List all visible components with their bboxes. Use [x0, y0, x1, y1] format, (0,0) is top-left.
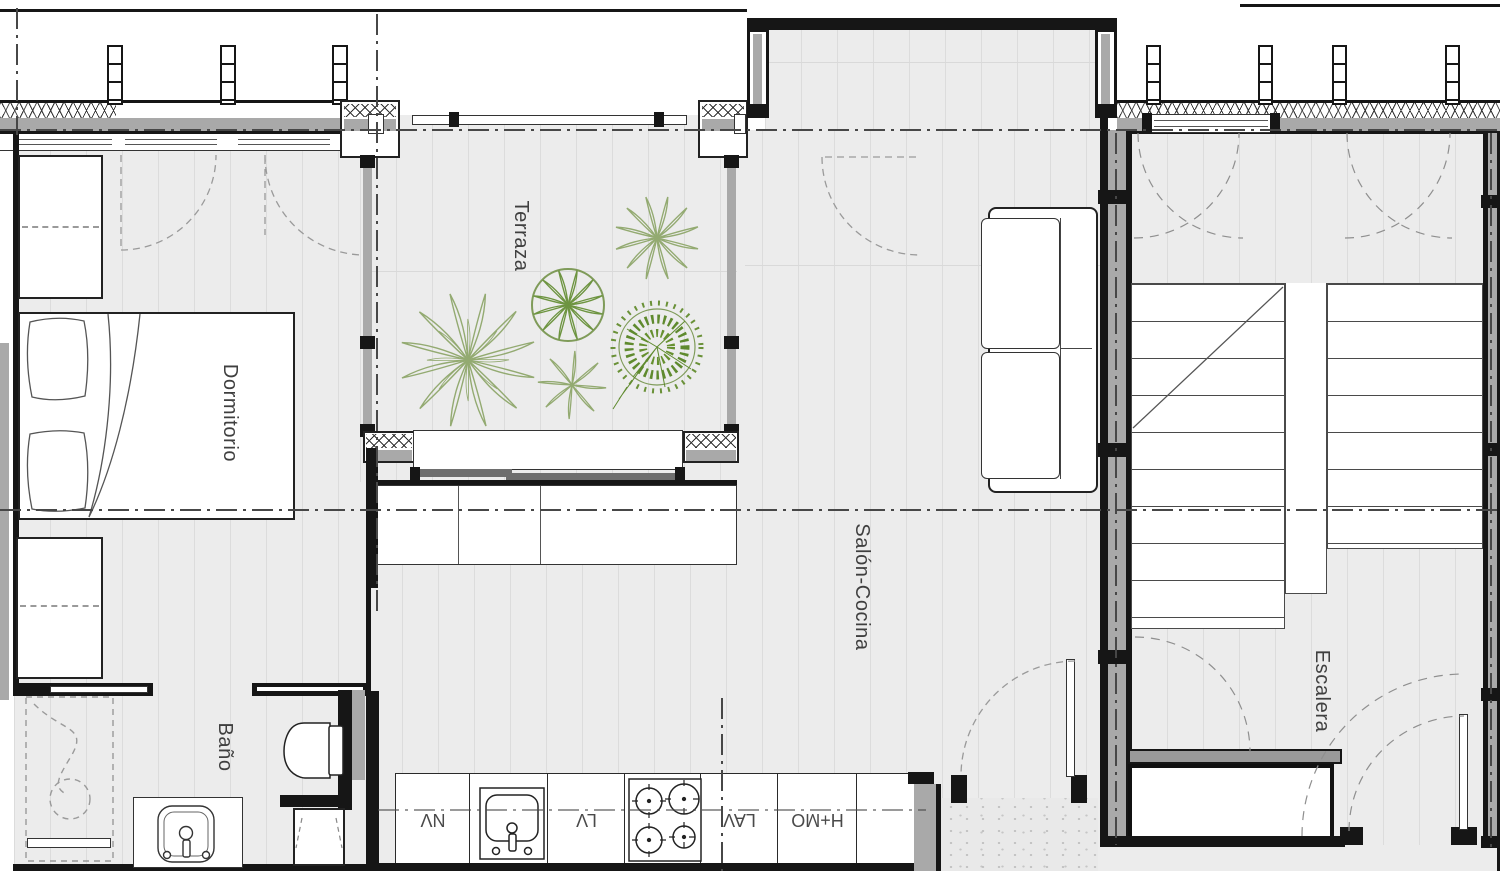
plant-lily	[530, 343, 615, 428]
appliance-label-lav: LAV	[701, 806, 778, 834]
washbasin	[158, 806, 214, 862]
plant-agave-small	[616, 197, 698, 279]
sink-glyph	[480, 788, 544, 859]
stair-door-arcs	[1134, 133, 1464, 836]
stair-direction-line	[1133, 287, 1283, 428]
bed-detail	[27, 314, 140, 517]
reference-line-horizontal	[0, 129, 1500, 131]
toilet	[284, 723, 343, 778]
plant-agave-large	[402, 294, 534, 426]
appliance-label-nv: NV	[396, 806, 470, 834]
floor-plan: Dormitorio Terraza Salón-Cocina Baño Esc…	[0, 0, 1500, 871]
shower	[26, 697, 113, 861]
reference-line-vertical	[721, 698, 723, 871]
reference-line-vertical	[376, 14, 378, 614]
door-swing-arcs	[121, 155, 1075, 776]
room-label-salon-cocina: Salón-Cocina	[847, 502, 873, 672]
cooktop	[629, 779, 701, 861]
plant-potted-round	[532, 269, 604, 341]
reference-line-vertical	[1490, 133, 1492, 850]
appliance-label-lv: LV	[548, 806, 625, 834]
room-label-terraza: Terraza	[506, 166, 532, 306]
reference-line-horizontal	[0, 509, 1500, 511]
reference-line-vertical	[16, 8, 18, 135]
room-label-dormitorio: Dormitorio	[215, 343, 241, 483]
room-label-bano: Baño	[210, 707, 236, 787]
appliance-label-hmo: H+MO	[778, 806, 857, 834]
room-label-escalera: Escalera	[1307, 631, 1333, 751]
reference-line-vertical	[1115, 133, 1117, 845]
plant-bush	[613, 303, 701, 409]
bath-door-marks	[296, 818, 342, 848]
